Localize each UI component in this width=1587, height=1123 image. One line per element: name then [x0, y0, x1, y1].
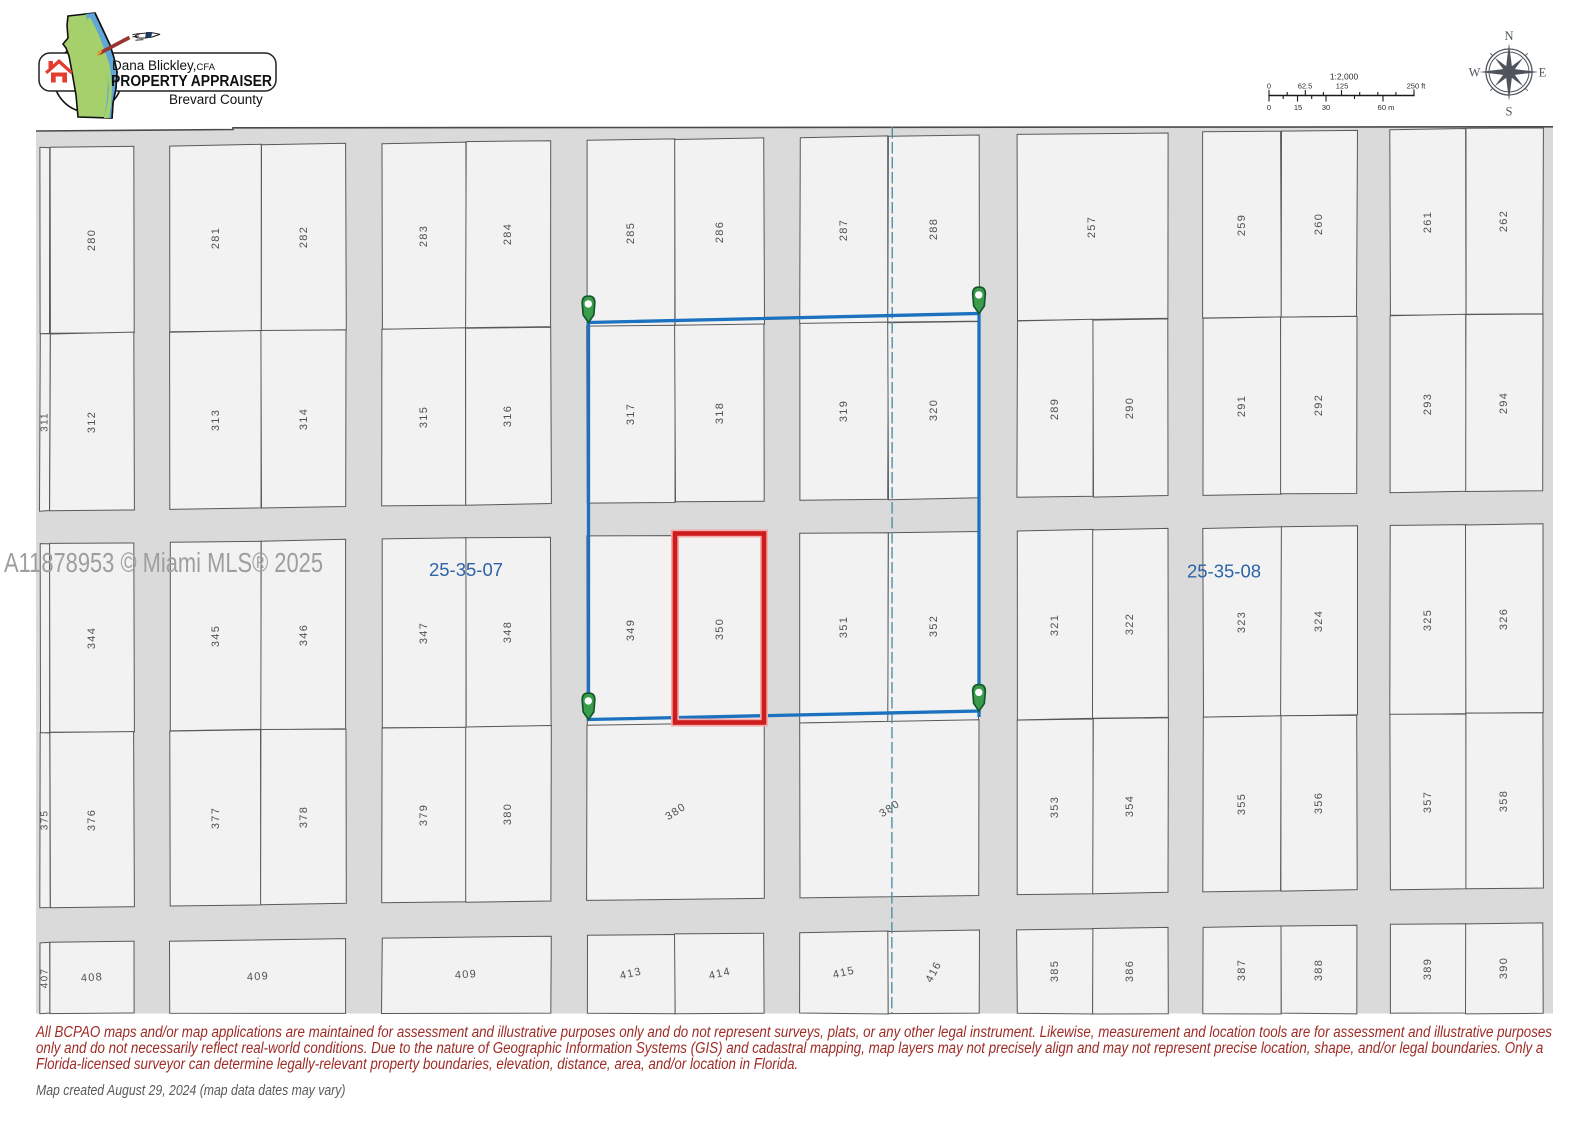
- svg-text:25-35-08: 25-35-08: [1187, 561, 1261, 582]
- svg-text:409: 409: [246, 970, 269, 984]
- svg-text:S: S: [1506, 105, 1513, 119]
- svg-text:317: 317: [625, 403, 637, 425]
- svg-text:320: 320: [928, 399, 940, 421]
- svg-text:259: 259: [1236, 214, 1248, 236]
- svg-text:325: 325: [1422, 609, 1434, 631]
- svg-text:0: 0: [1267, 82, 1271, 91]
- svg-text:319: 319: [838, 400, 850, 422]
- svg-text:379: 379: [418, 804, 430, 826]
- svg-text:348: 348: [502, 621, 514, 643]
- svg-text:351: 351: [838, 616, 850, 638]
- svg-text:390: 390: [1498, 957, 1510, 979]
- svg-text:385: 385: [1049, 960, 1061, 982]
- svg-text:25-35-07: 25-35-07: [429, 559, 503, 580]
- svg-text:409: 409: [454, 968, 477, 982]
- svg-text:358: 358: [1498, 790, 1510, 812]
- svg-text:0: 0: [1267, 103, 1271, 112]
- svg-text:350: 350: [714, 618, 726, 640]
- svg-text:355: 355: [1236, 793, 1248, 815]
- svg-text:324: 324: [1313, 610, 1325, 632]
- svg-text:316: 316: [502, 405, 514, 427]
- svg-text:289: 289: [1049, 398, 1061, 420]
- svg-text:250 ft: 250 ft: [1407, 82, 1427, 91]
- svg-text:283: 283: [418, 225, 430, 247]
- svg-text:312: 312: [86, 411, 98, 433]
- svg-text:281: 281: [210, 227, 222, 249]
- svg-text:344: 344: [86, 627, 98, 649]
- svg-text:PROPERTY APPRAISER: PROPERTY APPRAISER: [111, 73, 272, 90]
- svg-text:407: 407: [40, 968, 51, 989]
- svg-text:357: 357: [1422, 791, 1434, 813]
- svg-text:293: 293: [1422, 393, 1434, 415]
- svg-text:15: 15: [1294, 103, 1302, 112]
- svg-text:322: 322: [1124, 613, 1136, 635]
- svg-text:A11878953 © Miami MLS® 2025: A11878953 © Miami MLS® 2025: [4, 547, 323, 578]
- svg-text:356: 356: [1313, 792, 1325, 814]
- svg-text:353: 353: [1049, 796, 1061, 818]
- svg-text:287: 287: [838, 219, 850, 241]
- svg-text:387: 387: [1236, 959, 1248, 981]
- svg-text:288: 288: [928, 218, 940, 240]
- svg-text:318: 318: [714, 402, 726, 424]
- svg-text:321: 321: [1049, 614, 1061, 636]
- svg-text:262: 262: [1498, 210, 1510, 232]
- svg-text:386: 386: [1124, 960, 1136, 982]
- svg-text:257: 257: [1086, 216, 1098, 238]
- svg-text:378: 378: [298, 806, 310, 828]
- svg-text:260: 260: [1313, 213, 1325, 235]
- svg-text:346: 346: [298, 624, 310, 646]
- svg-text:326: 326: [1498, 608, 1510, 630]
- svg-text:291: 291: [1236, 395, 1248, 417]
- svg-text:388: 388: [1313, 959, 1325, 981]
- svg-text:380: 380: [502, 803, 514, 825]
- svg-text:1:2,000: 1:2,000: [1330, 72, 1359, 82]
- svg-text:349: 349: [625, 619, 637, 641]
- svg-text:294: 294: [1498, 392, 1510, 414]
- svg-text:345: 345: [210, 625, 222, 647]
- svg-text:389: 389: [1422, 958, 1434, 980]
- svg-text:30: 30: [1322, 103, 1330, 112]
- svg-text:60 m: 60 m: [1378, 103, 1395, 112]
- svg-text:314: 314: [298, 408, 310, 430]
- svg-text:N: N: [1504, 29, 1513, 43]
- svg-text:282: 282: [298, 226, 310, 248]
- svg-text:280: 280: [86, 229, 98, 251]
- svg-text:285: 285: [625, 222, 637, 244]
- svg-text:Brevard County: Brevard County: [169, 92, 263, 107]
- svg-text:311: 311: [40, 412, 51, 432]
- svg-text:408: 408: [80, 971, 103, 985]
- svg-text:284: 284: [502, 223, 514, 245]
- svg-text:323: 323: [1236, 611, 1248, 633]
- svg-text:315: 315: [418, 406, 430, 428]
- svg-text:62.5: 62.5: [1298, 82, 1313, 91]
- svg-text:354: 354: [1124, 795, 1136, 817]
- svg-text:313: 313: [210, 409, 222, 431]
- svg-text:W: W: [1469, 66, 1481, 80]
- svg-text:261: 261: [1422, 211, 1434, 233]
- svg-text:286: 286: [714, 221, 726, 243]
- svg-text:125: 125: [1336, 82, 1349, 91]
- svg-text:376: 376: [86, 809, 98, 831]
- svg-text:E: E: [1539, 66, 1547, 80]
- svg-text:375: 375: [40, 810, 51, 831]
- svg-text:352: 352: [928, 615, 940, 637]
- svg-text:347: 347: [418, 622, 430, 644]
- svg-text:290: 290: [1124, 397, 1136, 419]
- svg-text:292: 292: [1313, 394, 1325, 416]
- svg-text:377: 377: [210, 807, 222, 829]
